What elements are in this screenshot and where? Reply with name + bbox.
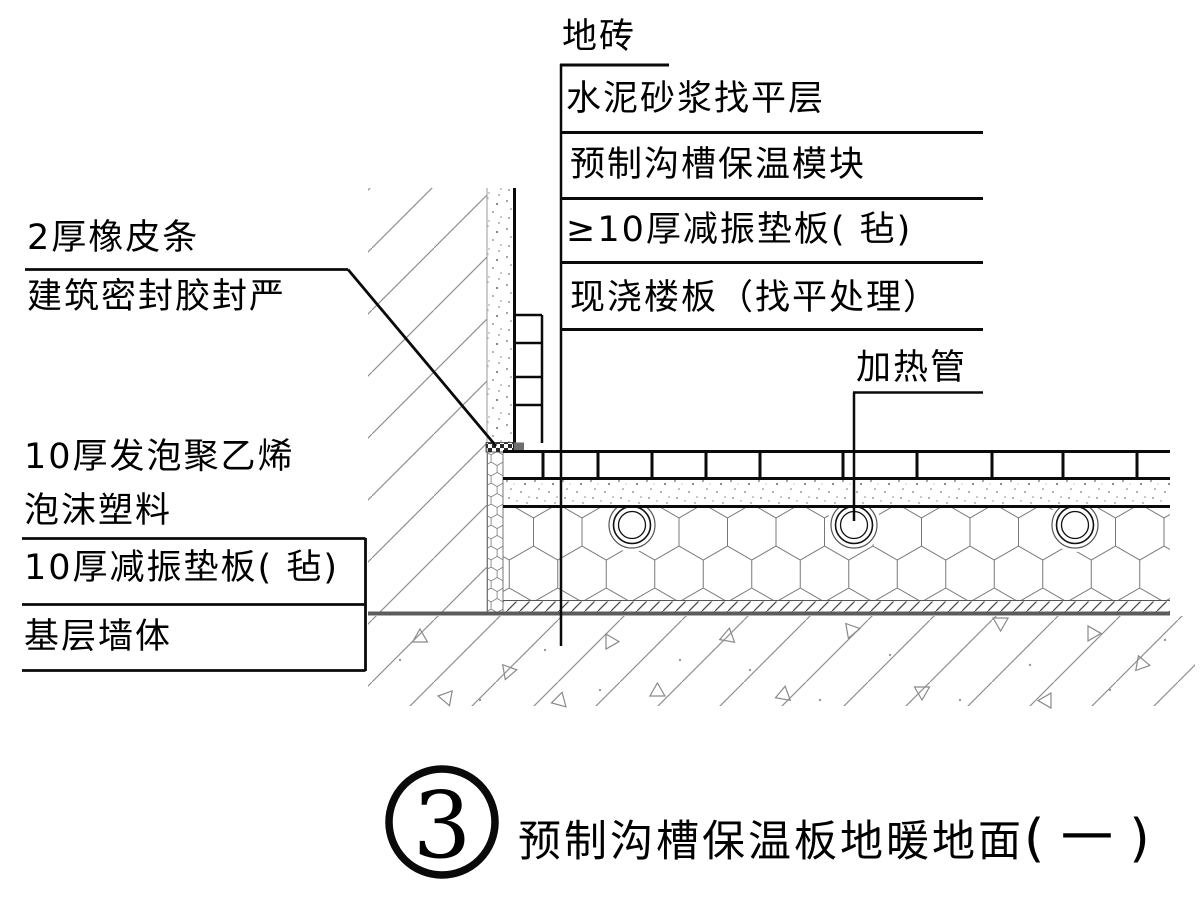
label-base-wall: 基层墙体 (24, 620, 172, 655)
label-edge-foam-2: 泡沫塑料 (24, 494, 172, 529)
label-screed: 水泥砂浆找平层 (566, 82, 825, 117)
figure-title-text: 预制沟槽保温板地暖地面 (518, 817, 1024, 867)
insulation-module-layer (503, 498, 1170, 601)
construction-detail-sheet: 地砖 水泥砂浆找平层 预制沟槽保温模块 ≥10厚减振垫板( 毡) 现浇楼板（找平… (0, 0, 1200, 900)
floor-tile-layer (503, 452, 1170, 479)
damping-pad-layer (503, 602, 1170, 613)
label-insulation-module: 预制沟槽保温模块 (570, 148, 866, 183)
screed-layer (503, 480, 1170, 505)
base-wall-hatch (368, 188, 487, 612)
figure-number: 3 (387, 772, 497, 879)
edge-foam-strip (488, 452, 504, 612)
label-slab: 现浇楼板（找平处理） (570, 281, 940, 316)
figure-title-suffix: ( 一 ) (1024, 809, 1150, 869)
label-damping-pad-min10: ≥10厚减振垫板( 毡) (566, 213, 912, 248)
figure-title: 预制沟槽保温板地暖地面( 一 ) (518, 796, 1150, 871)
slab-concrete (368, 612, 1195, 709)
label-rubber-strip: 2厚橡皮条 (27, 221, 199, 256)
wall-tile-column (515, 315, 543, 443)
label-sealant: 建筑密封胶封严 (27, 280, 286, 315)
label-edge-foam-1: 10厚发泡聚乙烯 (24, 440, 295, 475)
label-damping-pad-10: 10厚减振垫板( 毡) (24, 551, 339, 586)
label-heating-pipe: 加热管 (856, 351, 967, 386)
label-floor-tile: 地砖 (562, 20, 636, 55)
